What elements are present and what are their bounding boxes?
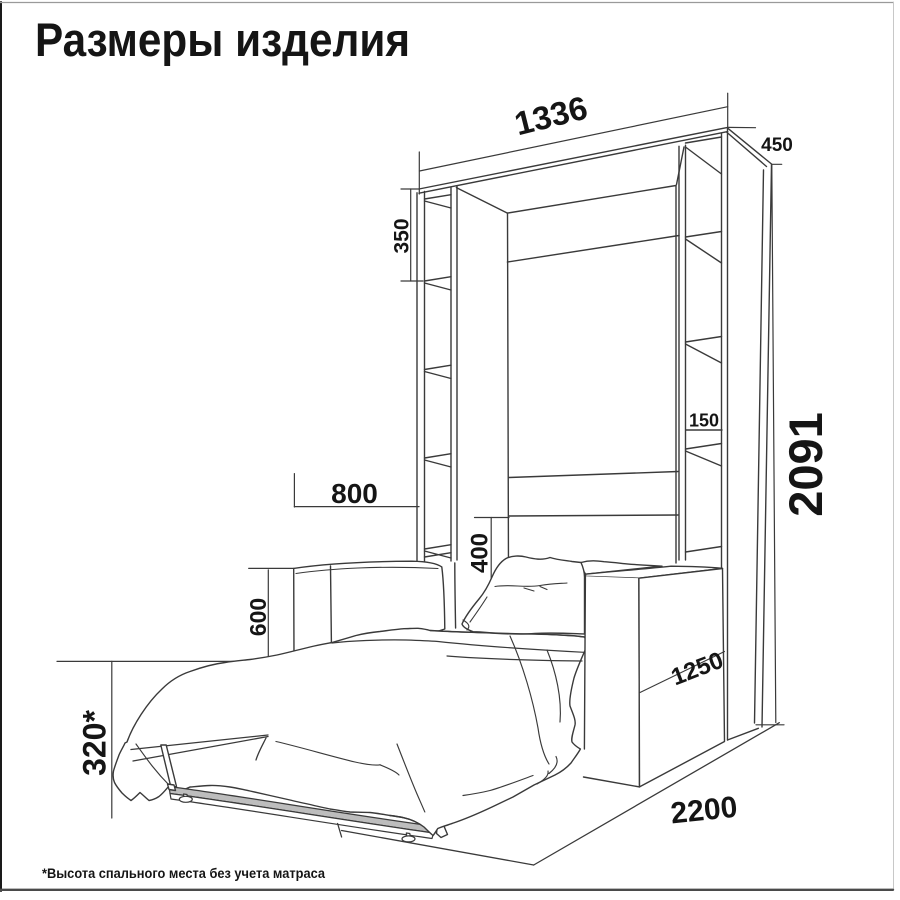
svg-text:1336: 1336: [511, 89, 591, 143]
svg-text:400: 400: [467, 533, 494, 573]
svg-text:600: 600: [245, 598, 271, 636]
svg-text:2200: 2200: [669, 791, 739, 831]
svg-text:2091: 2091: [779, 412, 832, 517]
svg-text:800: 800: [331, 478, 378, 509]
svg-text:350: 350: [391, 218, 414, 253]
svg-text:450: 450: [761, 135, 793, 156]
svg-text:150: 150: [689, 411, 719, 431]
svg-text:Размеры изделия: Размеры изделия: [35, 13, 410, 66]
svg-text:320*: 320*: [77, 710, 113, 776]
svg-text:*Высота спального места без уч: *Высота спального места без учета матрас…: [42, 866, 325, 882]
